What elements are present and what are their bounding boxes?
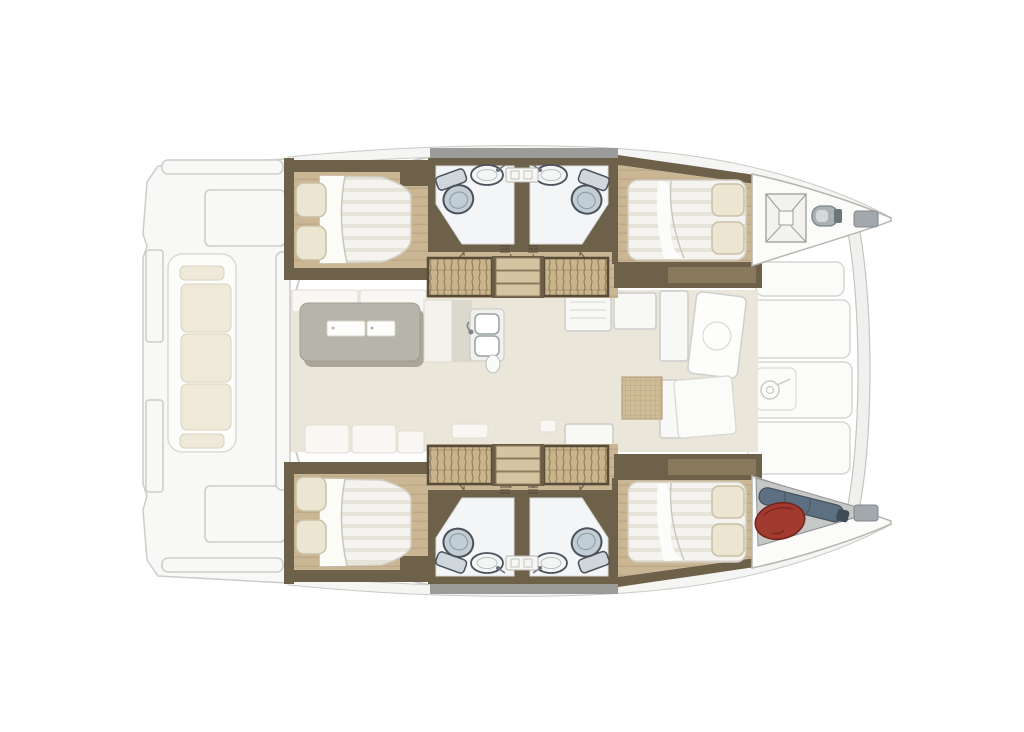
double-bed-forward-port bbox=[628, 482, 746, 562]
anchor-hatch bbox=[766, 194, 806, 242]
cabin-aft-starboard bbox=[284, 158, 432, 280]
berth-infill-panel bbox=[544, 446, 608, 484]
deck-locker-4 bbox=[748, 422, 850, 474]
saloon-seat-aft-3 bbox=[398, 431, 424, 453]
bench-cushion-1 bbox=[181, 284, 231, 332]
wash-basin bbox=[471, 553, 505, 573]
galley-floor-mat bbox=[622, 377, 662, 419]
cockpit-roof-edge-aft bbox=[162, 558, 283, 572]
pillow bbox=[296, 183, 326, 217]
windlass bbox=[812, 206, 842, 226]
catamaran-floor-plan bbox=[0, 0, 1024, 732]
pillow bbox=[296, 520, 326, 554]
cockpit-roof-edge bbox=[162, 160, 283, 174]
companionway-port bbox=[428, 444, 608, 486]
berth-infill-panel bbox=[428, 446, 492, 484]
bench-cushion-2 bbox=[181, 334, 231, 382]
berth-infill-panel bbox=[428, 258, 492, 296]
floor-plan-canvas bbox=[0, 0, 1024, 732]
companionway-steps bbox=[492, 444, 544, 486]
foredeck bbox=[744, 222, 870, 514]
transom-step-bottom bbox=[146, 400, 163, 492]
galley-counter-aft bbox=[424, 300, 452, 362]
saloon-table bbox=[300, 303, 424, 367]
deck-locker-2 bbox=[748, 300, 850, 358]
cabin-forward-starboard bbox=[612, 155, 762, 288]
saloon-seat-aft-4 bbox=[452, 424, 488, 438]
galley-sink bbox=[467, 309, 504, 361]
companionway-starboard bbox=[428, 256, 608, 298]
deck-locker-1 bbox=[756, 262, 844, 296]
companionway-steps bbox=[492, 256, 544, 298]
berth-infill-panel bbox=[544, 258, 608, 296]
bench-armrest-bottom bbox=[180, 434, 224, 448]
bench-armrest-top bbox=[180, 266, 224, 280]
pillow bbox=[712, 524, 744, 556]
pillow bbox=[712, 184, 744, 216]
wash-basin bbox=[471, 165, 505, 185]
saloon-seat-aft-1 bbox=[305, 425, 349, 453]
cockpit-bench bbox=[168, 254, 236, 452]
galley-stool bbox=[486, 355, 500, 373]
bow-cleat bbox=[854, 211, 878, 227]
bench-cushion-3 bbox=[181, 384, 231, 430]
cabin-aft-port bbox=[284, 462, 432, 584]
pillow bbox=[712, 486, 744, 518]
windscreen-top bbox=[430, 148, 618, 158]
cabin-forward-port bbox=[612, 454, 762, 587]
pillow bbox=[712, 222, 744, 254]
pillow bbox=[296, 477, 326, 511]
pillow bbox=[296, 226, 326, 260]
double-bed-aft-port bbox=[296, 477, 411, 566]
bow-cleat bbox=[854, 505, 878, 521]
windscreen-bottom bbox=[430, 584, 618, 594]
saloon-seat-aft-5 bbox=[540, 420, 556, 432]
transom-step-top bbox=[146, 250, 163, 342]
cockpit-seat-top bbox=[205, 190, 285, 246]
saloon-seat-aft-2 bbox=[352, 425, 396, 453]
saloon-aft-door bbox=[276, 252, 290, 490]
cockpit-seat-bottom bbox=[205, 486, 285, 542]
double-bed-forward-starboard bbox=[628, 180, 746, 260]
